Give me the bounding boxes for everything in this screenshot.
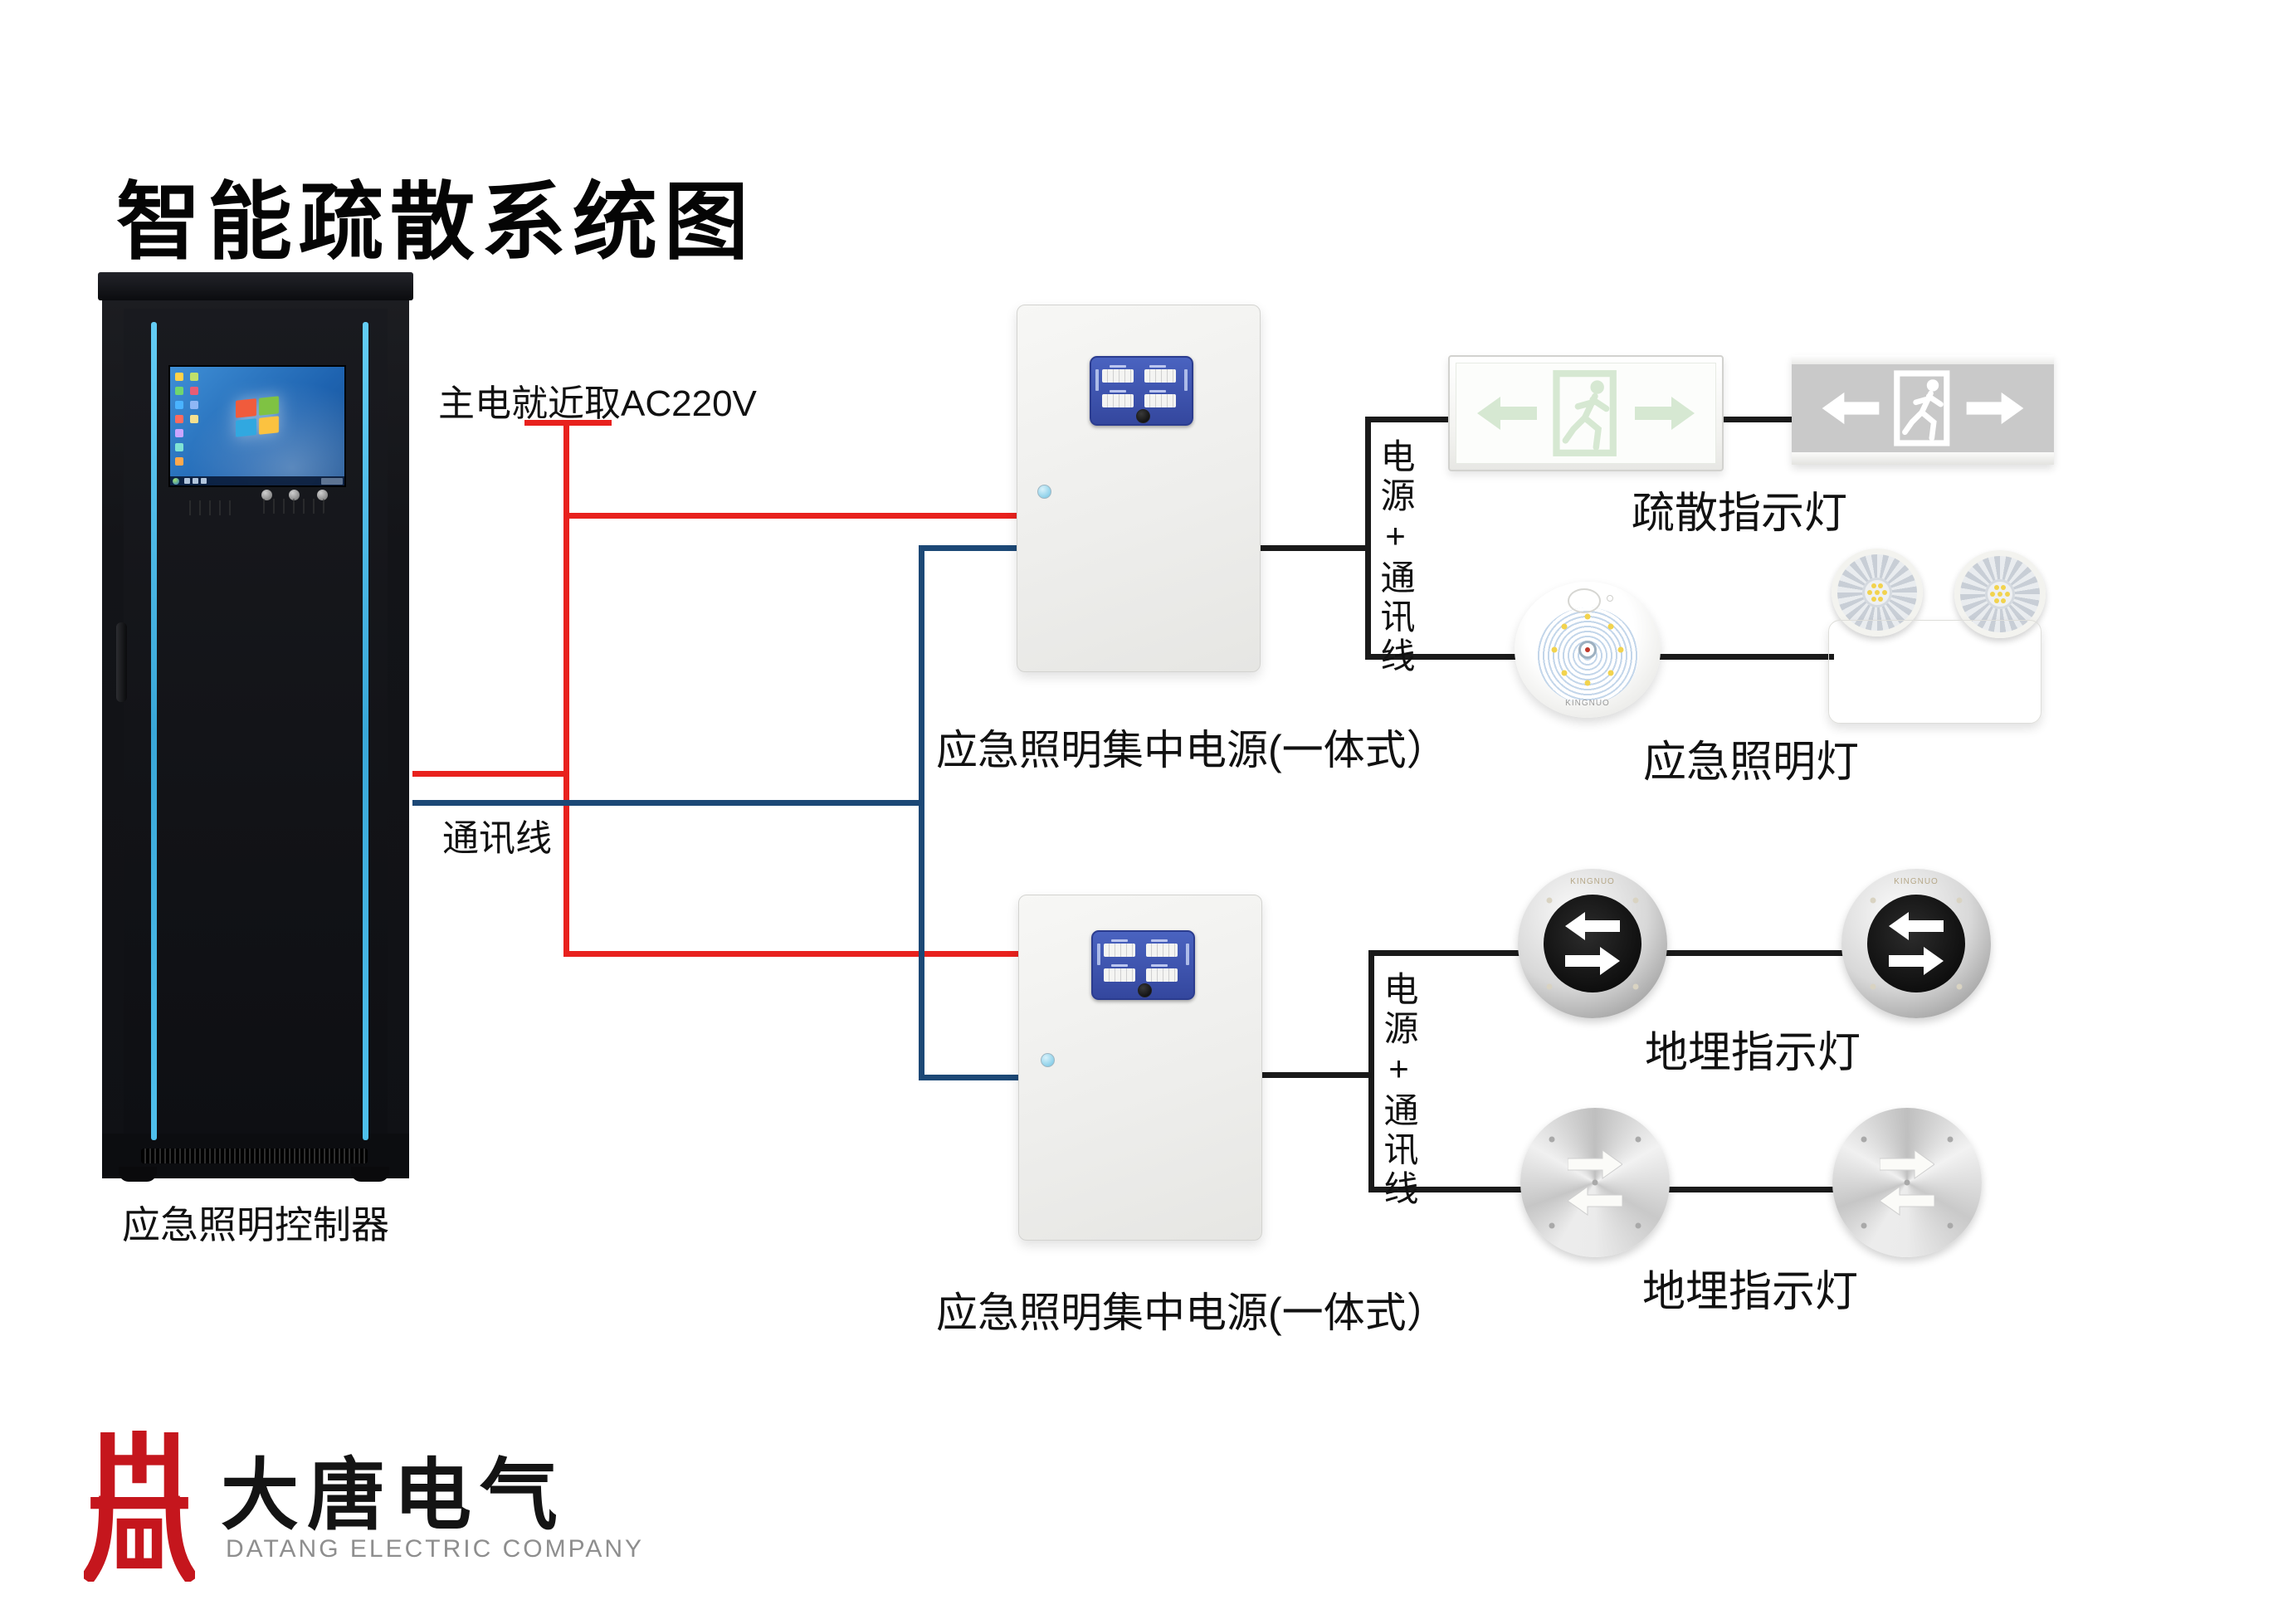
controller-label: 应急照明控制器 [102, 1195, 409, 1250]
rack-top-cap [98, 272, 413, 300]
junction2-vertical [1368, 950, 1374, 1192]
panel-display-window [1144, 369, 1176, 383]
taskbar-icon [193, 478, 198, 484]
emergency-lights-label: 应急照明灯 [1627, 727, 1876, 789]
running-man-exit-icon [1893, 369, 1953, 447]
brand-text: KINGNUO [1841, 877, 1991, 886]
arrow-right-icon [1635, 395, 1695, 432]
exit-sign-2 [1792, 355, 2054, 465]
buried-light-black-2: KINGNUO [1841, 869, 1991, 1018]
company-name-cn: 大唐电气 [221, 1432, 566, 1545]
power-wire-trunk [563, 420, 569, 957]
buried-light-black-1: KINGNUO [1518, 869, 1667, 1018]
power-wire-branch-2 [563, 951, 1022, 957]
taskbar [170, 476, 344, 485]
rack-control-strip [181, 500, 236, 515]
desktop-icon [175, 415, 183, 423]
exit-sign-1-face [1456, 363, 1716, 464]
windows-logo-tile [236, 418, 256, 437]
windows-logo-tile [259, 396, 280, 415]
arrow-left-icon [1568, 1186, 1622, 1216]
desktop-icon [190, 373, 198, 381]
power-box-2 [1018, 895, 1262, 1241]
panel-side-text [1184, 369, 1188, 391]
exit-sign-2-top-rail [1792, 355, 2054, 364]
desktop-icon [175, 443, 183, 451]
buried-light-face [1845, 1120, 1969, 1245]
panel-display-window [1104, 944, 1135, 957]
lamp-hub [1985, 579, 2015, 609]
arrow-left-icon [1880, 1186, 1934, 1216]
exit-signs-label: 疏散指示灯 [1615, 478, 1864, 540]
panel-marking [1110, 365, 1126, 368]
company-logo-icon [84, 1429, 195, 1582]
windows-logo-tile [259, 416, 280, 435]
windows-logo-icon [236, 396, 279, 436]
mains-wire-label: 主电就近取AC220V [438, 373, 757, 427]
taskbar-icon [201, 478, 207, 484]
page-title: 智能疏散系统图 [116, 154, 755, 276]
panel-marking [1111, 939, 1128, 942]
exit-sign-2-face [1797, 367, 2049, 450]
panel-knob [1136, 409, 1150, 423]
rack-foot [119, 1167, 157, 1182]
comm-wire-label: 通讯线 [442, 808, 552, 861]
buried-light-steel-2 [1832, 1108, 1982, 1257]
buried-light-face [1867, 895, 1965, 992]
power-box-2-panel [1091, 930, 1195, 1000]
desktop-icon [175, 457, 183, 466]
panel-marking [1110, 390, 1126, 393]
device-wire-box1-out [1259, 545, 1368, 551]
arrow-right-icon [1966, 391, 2024, 426]
rack-monitor-screen [168, 365, 346, 487]
desktop-icon [190, 387, 198, 395]
buried-light-face [1533, 1120, 1657, 1245]
windows-logo-tile [236, 398, 256, 417]
desktop-icon [175, 429, 183, 437]
controller-rack [102, 272, 409, 1178]
arrow-left-icon [1822, 391, 1880, 426]
taskbar-clock [321, 478, 343, 485]
panel-display-window [1146, 944, 1178, 957]
rack-control-strip [255, 499, 324, 514]
arrow-left-icon [1565, 911, 1620, 941]
arrow-right-icon [1565, 946, 1620, 976]
rack-accent-strip-left [151, 322, 157, 1140]
panel-side-text [1097, 944, 1100, 965]
panel-display-window [1146, 968, 1178, 982]
ceiling-light-button [1568, 588, 1601, 613]
power-box-2-label: 应急照明集中电源(一体式） [936, 1280, 1442, 1339]
buried-lights-bottom-label: 地埋指示灯 [1626, 1256, 1875, 1319]
device-wire-box2-out [1259, 1072, 1372, 1078]
desktop-icon [175, 373, 183, 381]
lamp-hub [1862, 578, 1892, 607]
ceiling-light-center [1578, 641, 1597, 659]
start-orb-icon [173, 478, 179, 485]
power-wire-from-rack [412, 771, 569, 777]
brand-text: KINGNUO [1515, 699, 1661, 708]
box-screw-led [1037, 485, 1051, 499]
panel-side-text [1095, 369, 1099, 391]
comm-wire-trunk [919, 545, 924, 1080]
arrow-right-icon [1889, 946, 1944, 976]
evacuation-system-diagram: 智能疏散系统图 主电就近取AC220V 通讯线 电源+通讯线 电源+通讯线 [0, 0, 2278, 1624]
buried-light-steel-1 [1520, 1108, 1670, 1257]
desktop-icon [190, 401, 198, 409]
panel-display-window [1102, 394, 1134, 407]
taskbar-icon [184, 478, 190, 484]
box-screw-led [1041, 1053, 1055, 1067]
brand-text: KINGNUO [1518, 877, 1667, 886]
arrow-right-icon [1568, 1149, 1622, 1179]
buried-lights-top-label: 地埋指示灯 [1628, 1017, 1877, 1080]
junction2-label: 电源+通讯线 [1381, 971, 1416, 1209]
desktop-icon [175, 387, 183, 395]
twin-light-body [1828, 620, 2041, 724]
ceiling-light-button-dot [1607, 595, 1613, 602]
power-box-1 [1017, 305, 1261, 672]
panel-marking [1149, 390, 1166, 393]
running-man-exit-icon [1552, 370, 1620, 456]
panel-marking [1151, 939, 1168, 942]
panel-display-window [1102, 369, 1134, 383]
comm-wire-branch-2 [919, 1075, 1022, 1080]
panel-display-window [1104, 968, 1135, 982]
rack-door-handle [116, 622, 127, 702]
ceiling-emergency-light: KINGNUO [1515, 582, 1661, 718]
junction1-label: 电源+通讯线 [1378, 438, 1412, 676]
arrow-left-icon [1889, 911, 1944, 941]
desktop-icon [175, 401, 183, 409]
panel-side-text [1186, 944, 1189, 965]
power-box-1-panel [1090, 356, 1193, 426]
rack-accent-strip-right [363, 322, 368, 1140]
power-box-1-label: 应急照明集中电源(一体式） [936, 717, 1442, 777]
panel-display-window [1144, 394, 1176, 407]
rack-vent-grille [141, 1149, 368, 1163]
arrow-left-icon [1477, 395, 1537, 432]
panel-marking [1151, 964, 1168, 967]
exit-sign-2-bottom-rail [1792, 452, 2054, 465]
comm-wire-branch-1 [919, 545, 1022, 551]
junction1-vertical [1365, 417, 1371, 660]
rack-foot [351, 1167, 389, 1182]
buried-light-face [1544, 895, 1641, 992]
panel-marking [1149, 365, 1166, 368]
power-wire-branch-1 [563, 513, 1022, 519]
exit-sign-1 [1448, 355, 1724, 471]
desktop-icon [190, 415, 198, 423]
company-name-en: DATANG ELECTRIC COMPANY [226, 1535, 644, 1563]
panel-marking [1111, 964, 1128, 967]
comm-wire-from-rack [412, 800, 924, 806]
arrow-right-icon [1880, 1149, 1934, 1179]
panel-knob [1138, 983, 1152, 997]
